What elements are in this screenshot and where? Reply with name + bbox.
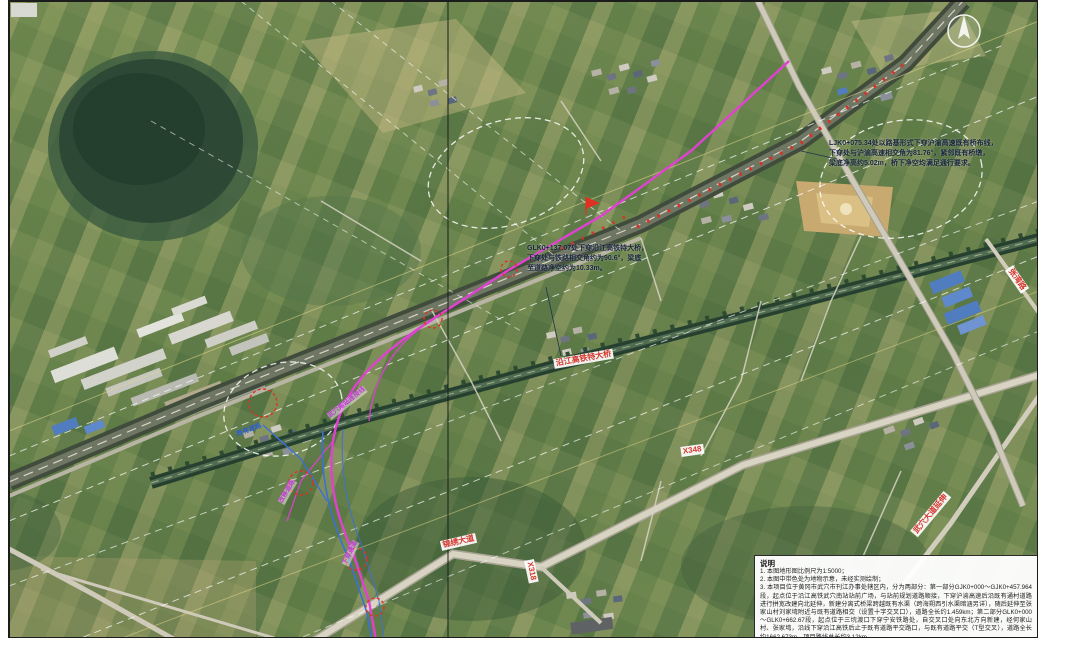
annotation-line: 至道路净空约为10.33m。 (527, 264, 687, 274)
annotation-line: 下穿处与沪渝高速相交角为81.76°，紧邻既有桥墩， (829, 149, 1019, 159)
annotation-expressway-undercross: LJK0+075.34处以路基形式下穿沪渝高速既有桥布线， 下穿处与沪渝高速相交… (829, 139, 1019, 169)
notes-box: 说明 1. 本图地形图比例尺为1:5000； 2. 本图中带色处为地物示意，未经… (754, 555, 1038, 638)
noise-texture (9, 1, 1038, 638)
annotation-railway-undercross: GLK0+137.07处下穿沿江高铁特大桥， 下穿处与铁路相交角约为90.6°，… (527, 244, 687, 274)
notes-title: 说明 (760, 559, 1032, 568)
notes-item: 1. 本图地形图比例尺为1:5000； (760, 568, 1032, 576)
notes-item: 3. 本项目位于黄冈市武穴市刊江办事处辖区内，分为两部分：第一部分GJK0+00… (760, 584, 1032, 638)
map-canvas: LJK0+075.34处以路基形式下穿沪渝高速既有桥布线， 下穿处与沪渝高速相交… (8, 0, 1038, 638)
drawing-sheet: LJK0+075.34处以路基形式下穿沪渝高速既有桥布线， 下穿处与沪渝高速相交… (0, 0, 1080, 645)
satellite-overlay (9, 1, 1038, 638)
annotation-line: 梁底净高约5.02m，桥下净空均满足通行要求。 (829, 159, 1019, 169)
annotation-line: GLK0+137.07处下穿沿江高铁特大桥， (527, 244, 687, 254)
annotation-line: LJK0+075.34处以路基形式下穿沪渝高速既有桥布线， (829, 139, 1019, 149)
annotation-line: 下穿处与铁路相交角约为90.6°，梁底 (527, 254, 687, 264)
